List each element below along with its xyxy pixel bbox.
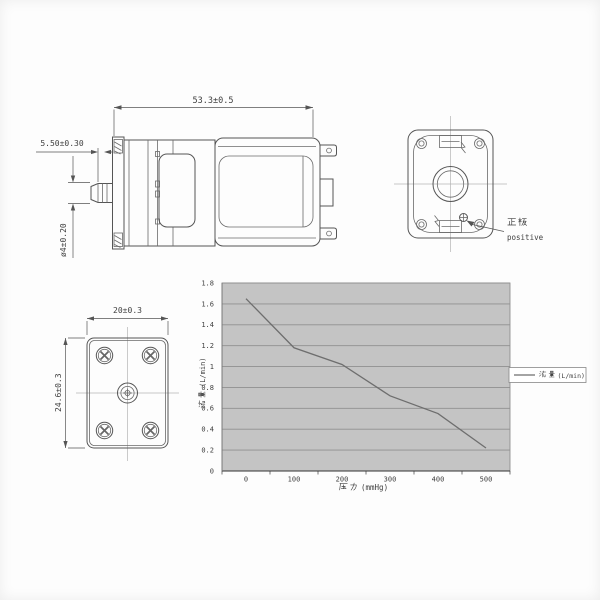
rear-view: positive — [394, 116, 544, 252]
flow-chart: 00.20.40.60.811.21.41.61.801002003004005… — [198, 279, 586, 492]
plot-area — [222, 283, 510, 471]
length-dim-label: 53.3±0.5 — [193, 96, 234, 106]
pump-head — [124, 140, 215, 246]
motor-tab-bottom — [320, 228, 337, 239]
y-tick-label: 1 — [210, 363, 214, 371]
base-screw-bottom-right — [142, 422, 158, 438]
flange-hole-top-right — [475, 139, 485, 149]
y-axis-title: (L/min) — [198, 357, 207, 407]
bottom-view: 20±0.3 24.6±0.3 — [54, 306, 179, 461]
x-tick-label: 500 — [480, 476, 493, 484]
motor-tab-top — [320, 145, 337, 156]
y-tick-label: 0.2 — [201, 447, 214, 455]
y-tick-label: 0 — [210, 467, 214, 475]
chart-legend: (L/min) — [509, 368, 586, 383]
x-axis-title: (mmHg) — [340, 483, 388, 492]
flange-hole-bottom-right — [475, 220, 485, 230]
base-screw-top-right — [142, 347, 158, 363]
x-axis-unit: (mmHg) — [361, 483, 388, 492]
polarity-mark-bottom — [435, 216, 440, 227]
inlet-len-dim-label: 5.50±0.30 — [40, 139, 84, 148]
cjk-zheng-glyph — [508, 219, 516, 225]
positive-label-en: positive — [507, 233, 544, 242]
x-tick-label: 0 — [244, 476, 248, 484]
x-tick-label: 400 — [432, 476, 445, 484]
inlet-dia-dim-label: ø4±0.20 — [59, 223, 68, 257]
pump-datasheet-page: 53.3±0.5 5.50±0.30 ø4±0.20 — [0, 0, 600, 600]
base-screw-bottom-left — [96, 422, 112, 438]
pump-rear-flange — [113, 137, 125, 249]
y-tick-label: 1.4 — [201, 321, 214, 329]
cjk-ya-glyph — [340, 483, 348, 489]
y-tick-label: 0.6 — [201, 405, 214, 413]
flange-hole-top-left — [417, 139, 427, 149]
inlet-diameter-dimension: ø4±0.20 — [59, 156, 90, 258]
base-screw-top-left — [96, 347, 112, 363]
height-dim-label: 24.6±0.3 — [54, 373, 63, 412]
flange-screw-top — [114, 140, 123, 155]
y-tick-label: 1.2 — [201, 342, 214, 350]
cjk-liang-glyph — [199, 392, 205, 398]
cjk-ji-glyph — [519, 218, 527, 226]
x-tick-label: 200 — [336, 476, 349, 484]
flange-screw-bottom — [114, 233, 123, 248]
y-tick-label: 0.4 — [201, 426, 214, 434]
cjk-li-glyph — [351, 483, 357, 490]
y-tick-label: 1.6 — [201, 300, 214, 308]
y-tick-label: 1.8 — [201, 279, 214, 287]
x-tick-label: 100 — [288, 476, 301, 484]
flange-hole-bottom-left — [417, 220, 427, 230]
motor-body — [215, 138, 337, 246]
pump-head-cover — [159, 154, 195, 227]
y-axis-unit: (L/min) — [199, 357, 207, 387]
legend-unit: (L/min) — [558, 372, 585, 380]
positive-terminal — [460, 214, 468, 222]
positive-label-cjk-glyphs — [508, 218, 527, 226]
side-view: 53.3±0.5 5.50±0.30 ø4±0.20 — [36, 96, 337, 258]
length-dimension: 53.3±0.5 — [114, 96, 313, 137]
inlet-nozzle — [91, 184, 113, 203]
width-dim-label: 20±0.3 — [113, 306, 142, 315]
motor-end-boss — [320, 179, 333, 206]
